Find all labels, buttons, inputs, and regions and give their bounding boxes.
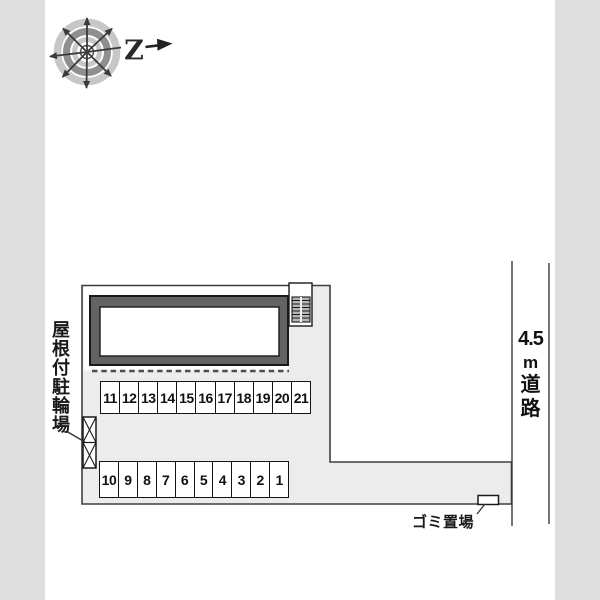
north-arrow-icon <box>146 39 173 51</box>
site-plan-canvas: Z 1112131415161718192021 10987654321 屋根付… <box>0 0 600 600</box>
road-width-value: 4.5 <box>518 327 543 352</box>
road-label: 4.5 m 道 路 <box>507 327 554 421</box>
parking-row-lower: 10987654321 <box>99 461 289 498</box>
parking-space-12: 12 <box>119 382 138 413</box>
parking-space-20: 20 <box>272 382 291 413</box>
parking-space-9: 9 <box>118 462 137 497</box>
bicycle-rack <box>83 417 96 468</box>
parking-space-14: 14 <box>157 382 176 413</box>
parking-space-3: 3 <box>231 462 250 497</box>
parking-space-1: 1 <box>269 462 288 497</box>
parking-space-18: 18 <box>234 382 253 413</box>
parking-space-19: 19 <box>253 382 272 413</box>
road-width-unit: m <box>523 352 538 373</box>
garbage-box <box>478 496 499 505</box>
compass-rose-icon: Z <box>50 18 173 88</box>
site-plan-drawing: Z <box>0 0 600 600</box>
road-kanji-1: 道 <box>521 373 541 397</box>
parking-space-13: 13 <box>138 382 157 413</box>
parking-space-11: 11 <box>101 382 119 413</box>
road-kanji-2: 路 <box>521 397 541 421</box>
parking-space-6: 6 <box>175 462 194 497</box>
parking-space-2: 2 <box>250 462 269 497</box>
parking-space-5: 5 <box>194 462 213 497</box>
parking-space-4: 4 <box>212 462 231 497</box>
parking-row-upper: 1112131415161718192021 <box>100 381 311 414</box>
parking-space-7: 7 <box>156 462 175 497</box>
parking-space-16: 16 <box>195 382 214 413</box>
bicycle-parking-label: 屋根付駐輪場 <box>47 320 73 434</box>
parking-space-8: 8 <box>137 462 156 497</box>
parking-space-10: 10 <box>100 462 118 497</box>
building-interior <box>100 307 279 356</box>
parking-space-17: 17 <box>215 382 234 413</box>
stairs-icon <box>292 297 310 322</box>
garbage-label: ゴミ置場 <box>412 511 474 532</box>
parking-space-21: 21 <box>291 382 310 413</box>
compass-north-letter: Z <box>124 36 144 67</box>
parking-space-15: 15 <box>176 382 195 413</box>
garbage-leader-line <box>477 504 485 514</box>
